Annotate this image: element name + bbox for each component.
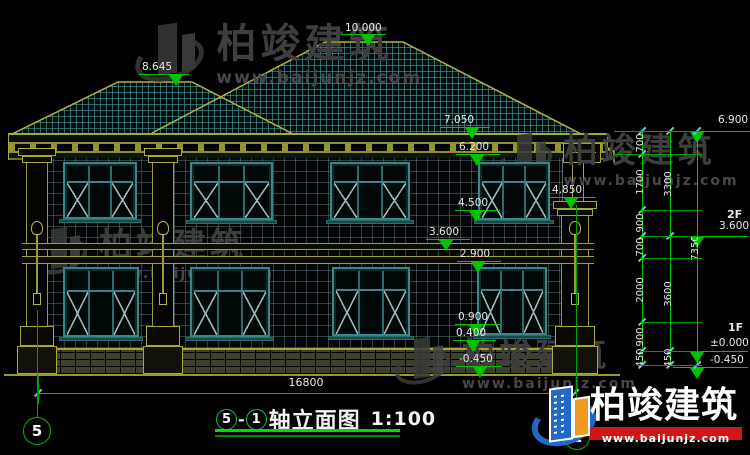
pilaster-capital: [557, 209, 593, 216]
elevation-label: 4.500: [458, 198, 488, 209]
window-transom-pane: [383, 166, 406, 181]
window-casement-pane: [334, 183, 359, 218]
dimension-extension-line: [38, 376, 39, 404]
elevation-drawing-canvas: 5 - 1 轴立面图 1:100 柏竣建筑www.baijunjz.com柏竣建…: [0, 0, 750, 455]
window-casement-pane: [112, 183, 133, 217]
pilaster-capital: [22, 156, 52, 163]
window-casement-pane: [336, 291, 360, 334]
window-sill: [328, 336, 414, 340]
window-transom-pane: [481, 271, 502, 289]
brand-logo-icon: [533, 385, 597, 445]
window-transom-pane: [220, 166, 246, 181]
dimension-value: 1700: [636, 167, 646, 197]
elevation-triangle-icon: [469, 211, 483, 222]
title-dash: -: [238, 410, 245, 429]
window-casement-pane: [194, 183, 220, 218]
window-casement-pane: [194, 292, 219, 335]
window-casement-pane: [67, 183, 90, 217]
title-axis-circle-a: 5: [216, 409, 237, 430]
window-casement-pane: [526, 183, 546, 218]
string-course-band: [22, 256, 594, 264]
elevation-label: 3.600: [719, 221, 749, 232]
pilaster-ornament-icon: [33, 293, 41, 305]
dimension-line-horizontal: [38, 393, 575, 394]
window-transom-pane: [502, 271, 523, 289]
window-transom-pane: [112, 166, 133, 181]
elevation-triangle-icon: [465, 128, 479, 139]
brand-logo-text: 柏竣建筑: [590, 388, 738, 424]
dimension-extension-line: [640, 258, 702, 259]
window-sill: [186, 337, 274, 341]
elevation-triangle-icon: [473, 367, 487, 378]
pilaster-capital: [144, 148, 182, 156]
window-casement-pane: [360, 291, 384, 334]
brand-logo-url-strip: www.baijunjz.com: [590, 427, 742, 440]
window: [190, 162, 273, 220]
pilaster-ornament-icon: [571, 293, 579, 305]
elevation-label: 6.900: [718, 115, 748, 126]
window-sill: [326, 220, 414, 224]
elevation-triangle-icon: [361, 35, 375, 46]
window-casement-pane: [245, 183, 269, 218]
dimension-extension-line: [640, 351, 702, 352]
window-transom-pane: [245, 166, 269, 181]
elevation-label: -0.450: [459, 354, 493, 365]
window-transom-pane: [384, 271, 406, 289]
watermark-building-icon: [414, 337, 430, 379]
window-transom-pane: [336, 271, 360, 289]
window-casement-pane: [67, 292, 90, 335]
window-transom-pane: [67, 271, 90, 290]
elevation-triangle-icon: [439, 240, 453, 251]
window-sill: [474, 220, 554, 224]
window-casement-pane: [383, 183, 406, 218]
floor-label: 2F: [727, 209, 742, 220]
elevation-label: 7.050: [444, 115, 474, 126]
window-transom-pane: [360, 271, 384, 289]
window: [190, 267, 270, 337]
window-transom-pane: [194, 166, 220, 181]
dimension-value: 450: [636, 343, 646, 373]
watermark-url-text: www.baijunjz.com: [216, 70, 422, 87]
window-transom-pane: [526, 166, 546, 181]
window-casement-pane: [90, 183, 113, 217]
pilaster-ornament-icon: [157, 221, 169, 235]
elevation-label: -0.450: [710, 355, 744, 366]
pilaster-base: [552, 346, 598, 374]
dimension-extension-line: [640, 210, 702, 211]
drawing-scale: 1:100: [371, 408, 436, 430]
title-axis-circle-b: 1: [246, 409, 267, 430]
window-casement-pane: [243, 292, 266, 335]
window-transom-pane: [482, 166, 504, 181]
window: [63, 162, 137, 219]
window-casement-pane: [219, 292, 244, 335]
dimension-extension-line: [640, 322, 702, 323]
dimension-extension-line: [640, 236, 702, 237]
axis-bubble: 5: [23, 417, 51, 445]
window-casement-pane: [384, 291, 406, 334]
pilaster-base: [555, 326, 595, 346]
brand-logo: 柏竣建筑 www.baijunjz.com: [533, 383, 748, 445]
window-transom-pane: [524, 271, 543, 289]
dimension-extension-line: [614, 131, 702, 132]
window: [330, 162, 410, 220]
brand-logo-url: www.baijunjz.com: [602, 432, 730, 445]
elevation-label: 10.000: [345, 23, 382, 34]
watermark-building-icon: [433, 345, 443, 375]
pilaster-ornament-icon: [31, 221, 43, 235]
elevation-triangle-icon: [690, 368, 704, 379]
dimension-extension-line: [614, 154, 702, 155]
dimension-value: 3300: [664, 169, 674, 199]
elevation-label: 8.645: [142, 62, 172, 73]
elevation-triangle-icon: [169, 75, 183, 86]
pilaster-base: [143, 346, 183, 374]
window-sill: [186, 220, 277, 224]
watermark-logo-icon: [396, 336, 456, 386]
window: [478, 162, 550, 220]
elevation-triangle-icon: [466, 341, 480, 352]
dimension-value: 16800: [276, 377, 336, 388]
dimension-value: 450: [664, 343, 674, 373]
string-course-band: [22, 243, 594, 250]
elevation-line: [673, 367, 748, 368]
pilaster-ornament-icon: [162, 235, 164, 293]
window: [63, 267, 139, 337]
window-sill: [59, 219, 141, 223]
elevation-label: 6.200: [459, 142, 489, 153]
elevation-label: 0.400: [456, 328, 486, 339]
window-transom-pane: [90, 166, 113, 181]
window-transom-pane: [194, 271, 219, 290]
window: [332, 267, 410, 336]
watermark-url-text: www.baijunjz.com: [564, 174, 739, 188]
dimension-extension-line: [640, 365, 702, 366]
pilaster-capital: [18, 148, 56, 156]
title-underline-secondary: [215, 435, 400, 437]
pilaster-ornament-icon: [36, 235, 38, 293]
floor-label: 1F: [728, 322, 743, 333]
axis-line: [37, 310, 38, 417]
dimension-value: 700: [636, 128, 646, 158]
window-transom-pane: [219, 271, 244, 290]
window-transom-pane: [114, 271, 135, 290]
logo-building-blue-icon: [549, 385, 573, 442]
elevation-triangle-icon: [470, 155, 484, 166]
window-sill: [59, 337, 143, 341]
window-casement-pane: [502, 291, 523, 333]
window-casement-pane: [90, 292, 113, 335]
window-transom-pane: [359, 166, 384, 181]
elevation-label: 2.900: [460, 249, 490, 260]
elevation-label: 0.900: [458, 312, 488, 323]
elevation-label: ±0.000: [710, 338, 749, 349]
window-transom-pane: [334, 166, 359, 181]
pilaster-capital: [148, 156, 178, 163]
pilaster-ornament-icon: [159, 293, 167, 305]
elevation-triangle-icon: [471, 262, 485, 273]
window-transom-pane: [504, 166, 526, 181]
window-casement-pane: [504, 183, 526, 218]
watermark-building-icon: [182, 34, 195, 72]
window-casement-pane: [114, 292, 135, 335]
window-casement-pane: [220, 183, 246, 218]
dimension-value: 3600: [664, 279, 674, 309]
title-underline-primary: [215, 429, 400, 432]
window-transom-pane: [67, 166, 90, 181]
window-transom-pane: [90, 271, 113, 290]
pilaster-base: [146, 326, 180, 346]
dimension-value: 2000: [636, 275, 646, 305]
window-casement-pane: [359, 183, 384, 218]
dimension-chain-line: [670, 131, 671, 365]
logo-building-orange-icon: [573, 396, 590, 438]
window-transom-pane: [243, 271, 266, 290]
window-casement-pane: [524, 291, 543, 333]
elevation-label: 3.600: [429, 227, 459, 238]
pilaster-ornament-icon: [569, 221, 581, 235]
elevation-label: 4.850: [552, 185, 582, 196]
